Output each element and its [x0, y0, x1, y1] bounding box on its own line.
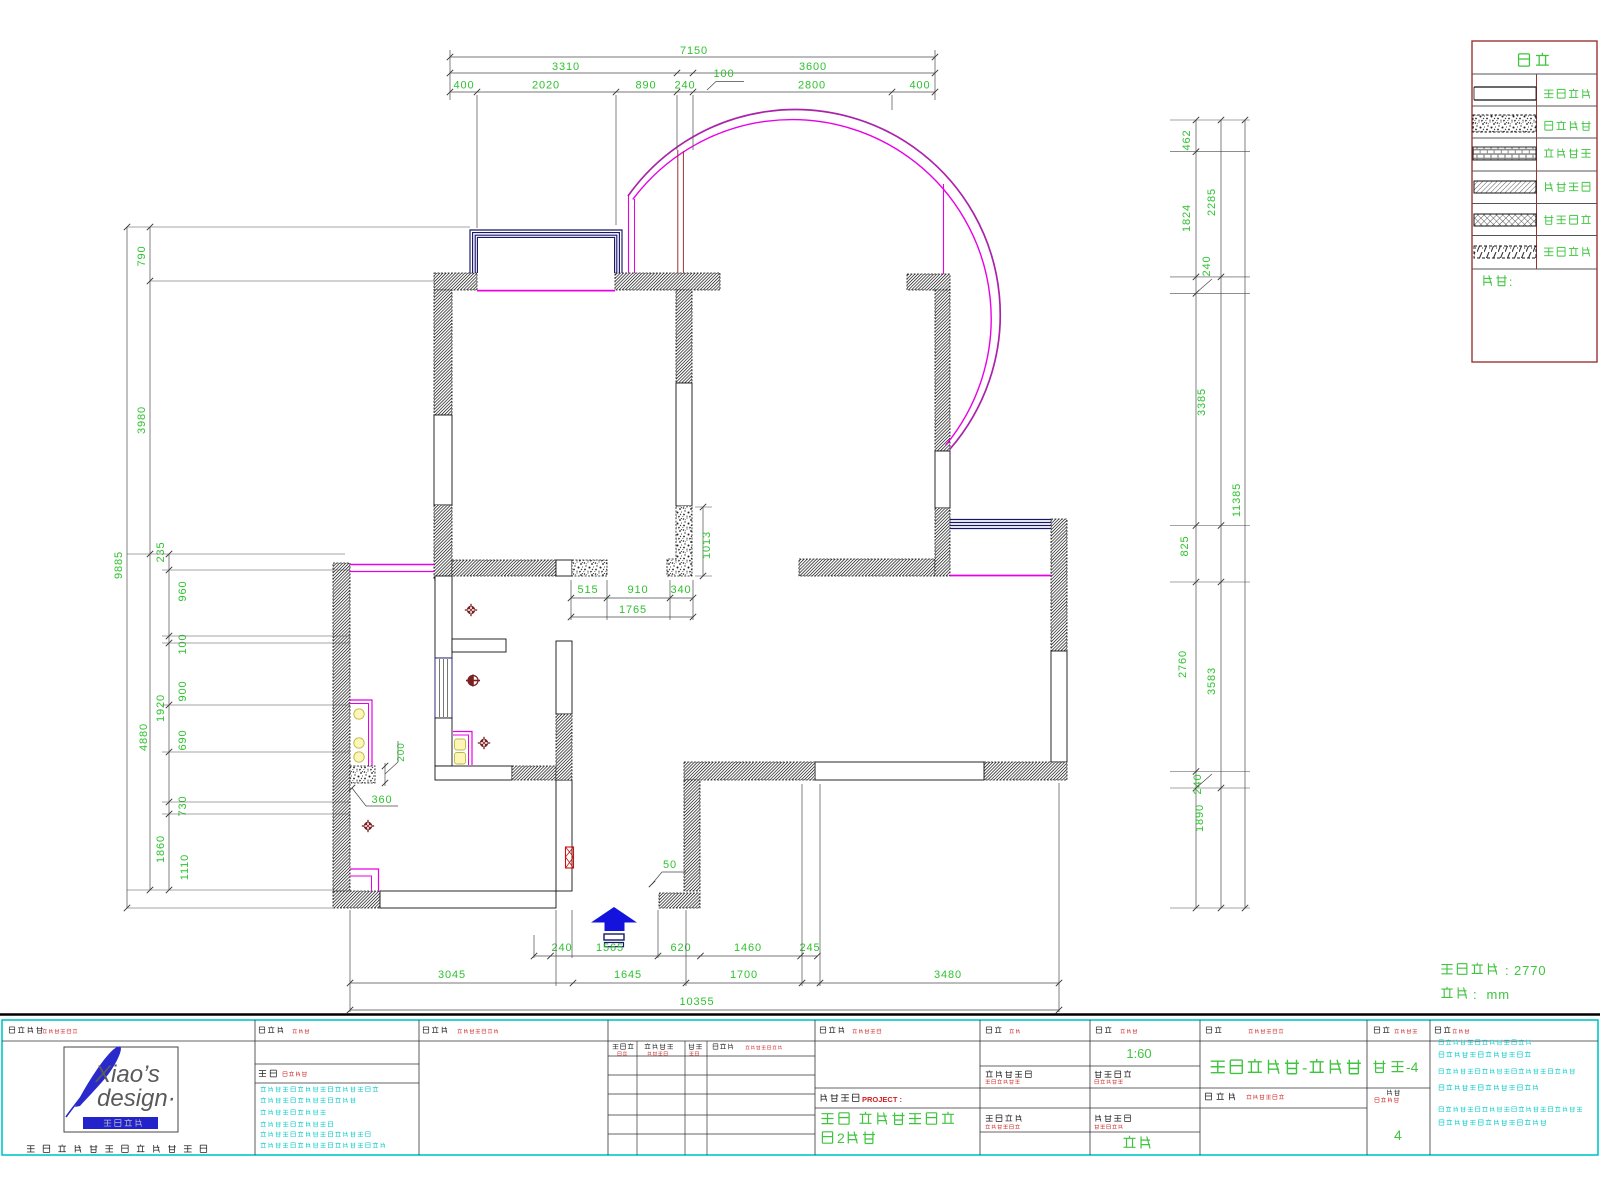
- svg-text:515: 515: [577, 584, 598, 596]
- svg-text:462: 462: [1181, 129, 1193, 150]
- svg-text:620: 620: [670, 942, 691, 954]
- svg-text:400: 400: [453, 80, 474, 92]
- svg-text:2020: 2020: [532, 80, 560, 92]
- svg-text:9885: 9885: [113, 551, 125, 579]
- svg-text:910: 910: [627, 584, 648, 596]
- svg-text:50: 50: [663, 859, 677, 871]
- svg-text:-4: -4: [1406, 1059, 1419, 1075]
- svg-text:3980: 3980: [136, 406, 148, 434]
- svg-text:3600: 3600: [799, 61, 827, 73]
- svg-text::: :: [1509, 275, 1512, 289]
- svg-text:360: 360: [371, 794, 392, 806]
- svg-text:1013: 1013: [701, 531, 713, 559]
- svg-text:240: 240: [674, 80, 695, 92]
- svg-text:: 2770: : 2770: [1505, 963, 1547, 978]
- svg-text:890: 890: [635, 80, 656, 92]
- svg-text:1460: 1460: [734, 942, 762, 954]
- svg-text:900: 900: [177, 680, 189, 701]
- svg-text:2285: 2285: [1206, 188, 1218, 216]
- svg-text:1645: 1645: [614, 969, 642, 981]
- svg-text:3480: 3480: [934, 969, 962, 981]
- svg-text:2760: 2760: [1177, 650, 1189, 678]
- svg-text:3045: 3045: [438, 969, 466, 981]
- svg-text:240: 240: [1201, 255, 1213, 276]
- svg-text:690: 690: [177, 729, 189, 750]
- svg-text:3385: 3385: [1196, 388, 1208, 416]
- svg-text:400: 400: [909, 80, 930, 92]
- svg-text:: mm: : mm: [1473, 987, 1510, 1002]
- svg-text:245: 245: [799, 942, 820, 954]
- svg-text:1824: 1824: [1181, 204, 1193, 232]
- svg-text:1700: 1700: [730, 969, 758, 981]
- svg-text:4880: 4880: [138, 723, 150, 751]
- svg-text:1860: 1860: [155, 835, 167, 863]
- svg-text:200: 200: [396, 742, 407, 761]
- svg-text:825: 825: [1179, 535, 1191, 556]
- svg-text:240: 240: [1192, 773, 1204, 794]
- svg-text:Xiao’s: Xiao’s: [94, 1061, 160, 1088]
- svg-text:100: 100: [177, 633, 189, 654]
- svg-text:PROJECT :: PROJECT :: [862, 1095, 902, 1104]
- svg-text:1:60: 1:60: [1126, 1046, 1151, 1061]
- svg-text:11385: 11385: [1231, 483, 1243, 517]
- svg-text:730: 730: [177, 795, 189, 816]
- svg-text:1110: 1110: [179, 854, 191, 880]
- svg-text:240: 240: [551, 942, 572, 954]
- svg-text:-: -: [1302, 1060, 1307, 1077]
- svg-text:1565: 1565: [596, 942, 624, 954]
- svg-text:790: 790: [136, 245, 148, 266]
- svg-text:2: 2: [837, 1130, 845, 1146]
- svg-text:100: 100: [713, 68, 734, 80]
- svg-text:235: 235: [155, 541, 167, 562]
- svg-text:1890: 1890: [1194, 804, 1206, 832]
- svg-text:3583: 3583: [1206, 667, 1218, 695]
- svg-text:7150: 7150: [680, 45, 708, 57]
- svg-text:design·: design·: [97, 1085, 176, 1112]
- svg-text:1765: 1765: [619, 604, 647, 616]
- svg-text:2800: 2800: [798, 80, 826, 92]
- svg-text:10355: 10355: [679, 996, 714, 1008]
- svg-text:1920: 1920: [155, 694, 167, 722]
- svg-text:4: 4: [1394, 1127, 1402, 1143]
- svg-text:960: 960: [177, 580, 189, 601]
- svg-text:340: 340: [670, 584, 691, 596]
- svg-text:3310: 3310: [552, 61, 580, 73]
